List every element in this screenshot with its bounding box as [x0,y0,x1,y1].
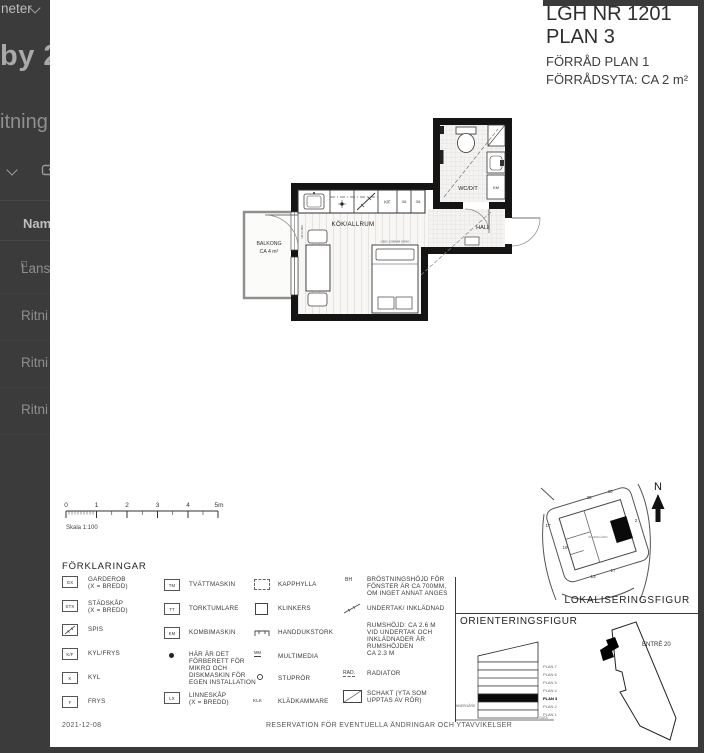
file-name[interactable]: Ritni [21,402,48,417]
building-marker [610,516,633,543]
kombimaskin-icon: KM [164,627,180,639]
legend-item [254,579,270,590]
background-notch [543,0,704,6]
kyl-icon: K [62,672,78,684]
divider [455,613,698,614]
storage-plan: FÖRRÅD PLAN 1 [546,53,688,70]
legend-item: TM [164,579,180,591]
file-name[interactable]: Ritni [21,308,48,323]
legend-item [255,603,268,615]
legend-item: K/F [62,648,78,660]
column-header-name[interactable]: Nam [23,216,50,231]
bh-symbol: BH [345,577,352,583]
file-name[interactable]: Lans [21,261,50,276]
legend-label: KYL [88,674,101,681]
legend-item [343,690,362,703]
legend-label: LINNESKÅP (X = BREDD) [189,692,229,706]
orientation-figure-title: ORIENTERINGSFIGUR [460,616,577,627]
app-root: neter by 2: itning Nam Lans Ritni Ritni … [0,0,704,753]
file-name[interactable]: Ritni [21,355,48,370]
legend-label: SPIS [88,626,103,633]
highlighted-floor [478,694,538,702]
scale-bar: 0 1 2 3 4 5m [62,498,232,534]
legend-title: FÖRKLARINGAR [62,561,147,572]
legend-label: SCHAKT (YTA SOM UPPTAS AV RÖR) [367,690,457,704]
svg-text:PLAN 6: PLAN 6 [543,672,558,677]
legend-item: STX [62,600,78,612]
radiator-icon: RAD. [343,670,355,677]
legend-item: MM [254,650,261,657]
legend-label: STÄDSKÅP (X = BREDD) [88,600,128,614]
legend-item [169,653,174,658]
km-label: KM [493,185,499,190]
svg-text:17: 17 [545,523,551,528]
svg-text:30: 30 [607,489,613,494]
chevron-down-icon[interactable] [6,164,17,175]
kapphylla-icon [254,579,270,590]
legend-label: KLINKERS [278,605,311,612]
torktumlare-icon: TT [164,603,180,615]
svg-text:28: 28 [586,495,592,500]
north-label: N [654,481,662,493]
scale-tick: 2 [125,502,129,509]
legend-label: GARDEROB (X = BREDD) [88,576,128,590]
bed-note: OBS! 1200MM SÄNG [380,240,410,244]
entry-door [512,218,540,246]
floor-labels: PLAN 7 PLAN 6 PLAN 5 PLAN 4 PLAN 3 PLAN … [543,664,558,717]
svg-text:PLAN 3: PLAN 3 [543,696,558,701]
room-label-wc: WC/D/T [458,186,478,192]
page-title: by 2: [0,40,50,73]
file-panel: neter by 2: itning Nam Lans Ritni Ritni … [0,0,50,753]
location-figure-title: LOKALISERINGSFIGUR [520,595,690,606]
kladkammare-icon: KLK [253,698,262,703]
legend-item: GX [62,576,78,588]
schakt [488,125,505,146]
breadcrumb[interactable]: neter [1,1,32,16]
legend-label: HÄR ÄR DET FÖRBERETT FÖR MIKRO OCH DISKM… [189,651,256,686]
bed: OBS! 1200MM SÄNG [372,240,418,314]
toilet-icon [456,127,476,153]
gata-label: GATA [539,716,548,720]
legend-item [257,674,263,680]
scale-tick: 5m [214,502,223,509]
svg-text:13: 13 [590,574,596,579]
svg-text:PLAN 7: PLAN 7 [543,664,558,669]
spis-icon [62,624,78,636]
legend-label: KYL/FRYS [88,650,120,657]
legend-label: BRÖSTNINGSHÖJD FÖR FÖNSTER ÄR CA 700MM, … [367,576,457,597]
dm-prepared-icon [169,653,174,658]
klinkers-icon [255,603,268,615]
kombimaskin: KM [487,175,505,199]
garderob-icon: GX [62,576,78,588]
title-block: LGH NR 1201 PLAN 3 FÖRRÅD PLAN 1 FÖRRÅDS… [546,3,688,88]
scale-tick: 4 [186,502,190,509]
svg-text:17: 17 [610,568,616,573]
scale-tick: 1 [95,502,99,509]
svg-text:PLAN 2: PLAN 2 [543,704,558,709]
legend-label: UNDERTAK/ INKLÄDNAD [367,605,457,612]
section-title: itning [0,111,48,134]
location-figure: N 28 30 [540,478,670,610]
tvattmaskin-icon: TM [164,579,180,591]
legend-item: LX [164,692,180,704]
legend-item: F [62,696,78,708]
kf-label: K/F [384,200,391,205]
share-icon[interactable] [40,160,50,178]
scale-tick: 0 [64,502,68,509]
north-arrow-icon [652,494,665,522]
handdukstork-icon [253,629,271,637]
drawing-date: 2021-12-08 [62,722,101,729]
cabinet-label: G6 [416,200,421,204]
legend-label: TVÄTTMASKIN [189,581,235,588]
legend-label: TORKTUMLARE [189,605,239,612]
room-label-kitchen: KÖK/ALLRUM [332,221,375,228]
plan-number: PLAN 3 [546,26,688,49]
legend-label: KAPPHYLLA [278,581,317,588]
frys-icon: F [62,696,78,708]
file-row[interactable]: Ritni [0,294,50,341]
kitchen-counter: K/F G6 G6 [298,190,425,213]
legend-item [62,624,78,636]
door-note: UK±0 MM [300,225,304,239]
stadskap-icon: STX [62,600,78,612]
storage-area: FÖRRÅDSYTA: CA 2 m² [546,71,688,88]
file-row[interactable]: Lans [0,247,50,294]
legend-item: KM [164,627,180,639]
scale-label: Skala 1:100 [66,525,98,531]
file-row[interactable]: Ritni [0,341,50,388]
legend-label: KOMBIMASKIN [189,629,236,636]
apartment-number: LGH NR 1201 [546,3,688,26]
legend-label: STUPRÖR [278,675,310,682]
stupror-icon [257,674,263,680]
legend-item: TT [164,603,180,615]
scale-tick: 3 [156,502,160,509]
divider [0,240,50,241]
legend-item: K [62,672,78,684]
washbasin-icon [487,152,505,173]
dining-table [306,230,330,306]
building-footprint: ENTRÉ 20 [588,616,698,746]
legend-label: RADIATOR [367,670,401,677]
linneskap-icon: LX [164,692,180,704]
floor-plan: BALKONG CA 4 m² [235,112,545,327]
building-section: PLAN 7 PLAN 6 PLAN 5 PLAN 4 PLAN 3 PLAN … [456,630,601,725]
undertak-icon [343,603,361,614]
site-streets [541,484,651,600]
innergard-label: INNERGÅRD [456,703,476,708]
multimedia-icon: MM [254,650,261,657]
legend-label: RUMSHÖJD: CA 2.6 M VID UNDERTAK OCH INKL… [367,622,457,657]
reservation-note: RESERVATION FÖR EVENTUELLA ÄNDRINGAR OCH… [266,722,512,729]
svg-text:19: 19 [562,545,568,550]
svg-text:PLAN 4: PLAN 4 [543,688,558,693]
kylfrys-icon: K/F [62,648,78,660]
cabinet-label: G6 [402,200,407,204]
entre-label: ENTRÉ 20 [642,641,671,648]
balcony-area-label: CA 4 m² [260,249,279,255]
svg-text:2: 2 [635,518,638,523]
legend-label: MULTIMEDIA [278,653,318,660]
document-page: LGH NR 1201 PLAN 3 FÖRRÅD PLAN 1 FÖRRÅDS… [50,0,698,747]
schakt-icon [343,690,362,703]
legend-label: KLÄDKAMMARE [278,698,329,705]
legend-label: HANDDUKSTORK [278,629,333,636]
balcony-label: BALKONG [256,241,281,247]
window [291,257,298,295]
file-row[interactable]: Ritni [0,388,50,435]
innergard-label: INNERGÅRD [588,534,608,539]
svg-text:PLAN 5: PLAN 5 [543,680,558,685]
legend-item [253,629,271,637]
legend-item [343,603,361,614]
divider [0,200,50,201]
legend-label: FRYS [88,698,105,705]
